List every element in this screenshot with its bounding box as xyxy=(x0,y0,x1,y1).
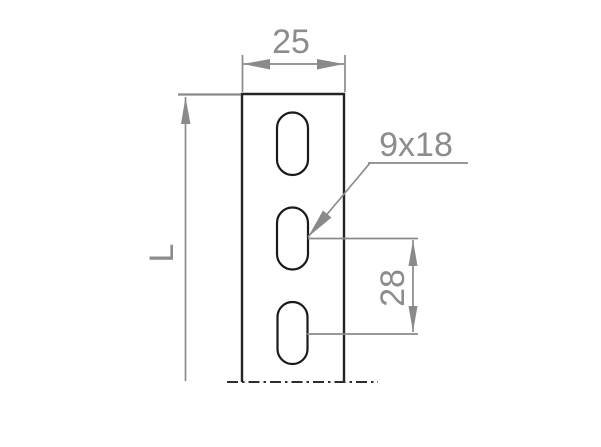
arrow-down-icon xyxy=(409,306,418,332)
slot-middle xyxy=(277,208,308,270)
width-dimension-label: 25 xyxy=(272,23,310,61)
width-dimension: 25 xyxy=(243,23,346,92)
arrow-left-icon xyxy=(243,59,270,70)
arrow-right-icon xyxy=(317,59,344,70)
length-dimension: L xyxy=(143,95,241,382)
slot-size-label: 9x18 xyxy=(379,126,453,164)
slotted-strip-drawing: 25 L 9x18 28 xyxy=(0,0,601,447)
slot-bottom xyxy=(278,302,308,364)
technical-drawing-canvas: 25 L 9x18 28 xyxy=(0,0,601,447)
slot-top xyxy=(277,113,308,176)
length-dimension-label: L xyxy=(143,244,181,263)
arrow-up-icon xyxy=(409,240,418,266)
arrow-up-icon xyxy=(181,97,191,124)
slot-spacing-label: 28 xyxy=(374,269,412,307)
